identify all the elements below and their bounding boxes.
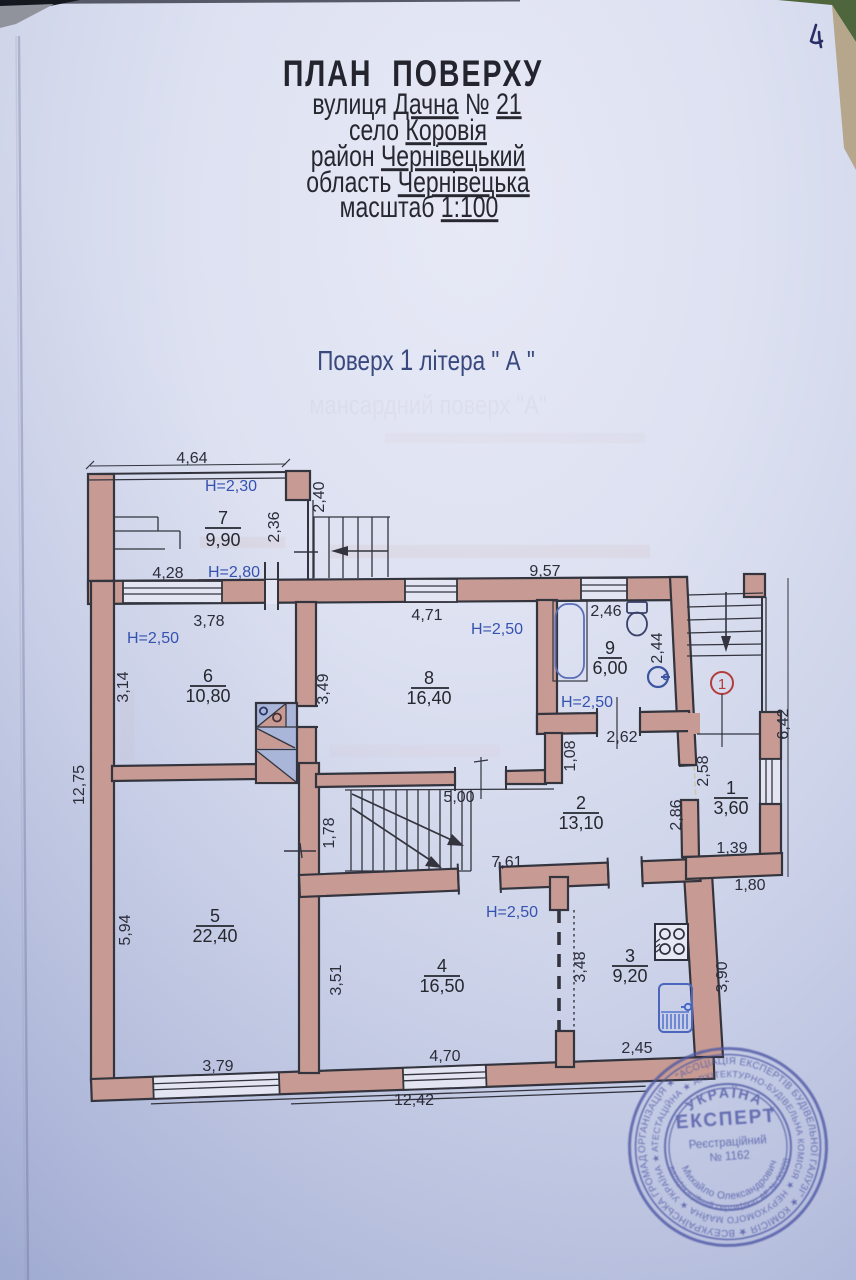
svg-text:5,00: 5,00	[443, 789, 474, 806]
svg-text:3: 3	[625, 946, 635, 966]
svg-text:мансардний поверх "А": мансардний поверх "А"	[309, 391, 546, 420]
svg-text:1: 1	[718, 676, 726, 693]
svg-text:3,78: 3,78	[193, 613, 224, 630]
svg-text:12,75: 12,75	[71, 765, 88, 805]
svg-text:7,61: 7,61	[491, 854, 522, 871]
svg-text:2,62: 2,62	[606, 729, 637, 746]
svg-text:16,50: 16,50	[419, 976, 464, 996]
svg-text:1,08: 1,08	[562, 740, 579, 771]
svg-text:6,42: 6,42	[775, 708, 792, 739]
svg-text:22,40: 22,40	[192, 926, 237, 946]
svg-text:9,20: 9,20	[612, 966, 647, 986]
svg-text:Н=2,80: Н=2,80	[208, 564, 260, 581]
svg-text:8: 8	[424, 668, 434, 688]
svg-text:2,44: 2,44	[649, 632, 666, 663]
svg-text:2,36: 2,36	[266, 511, 283, 542]
svg-text:Н=2,50: Н=2,50	[486, 904, 538, 921]
svg-text:5: 5	[210, 906, 220, 926]
svg-text:1,80: 1,80	[734, 877, 765, 894]
svg-text:2,45: 2,45	[621, 1040, 652, 1057]
svg-text:4: 4	[437, 956, 447, 976]
svg-text:Н=2,50: Н=2,50	[471, 621, 523, 638]
svg-text:9,57: 9,57	[529, 563, 560, 580]
svg-text:4,28: 4,28	[152, 565, 183, 582]
svg-text:2: 2	[576, 793, 586, 813]
svg-text:6,00: 6,00	[592, 658, 627, 678]
svg-text:5,94: 5,94	[117, 914, 134, 945]
svg-text:3,49: 3,49	[315, 673, 332, 704]
svg-text:масштаб 1:100: масштаб 1:100	[340, 190, 499, 223]
svg-text:16,40: 16,40	[406, 688, 451, 708]
svg-text:2,86: 2,86	[668, 799, 685, 830]
svg-text:Н=2,50: Н=2,50	[561, 694, 613, 711]
svg-text:3,79: 3,79	[202, 1058, 233, 1075]
svg-text:6: 6	[203, 666, 213, 686]
svg-text:3,51: 3,51	[328, 964, 345, 995]
svg-text:4,70: 4,70	[429, 1048, 460, 1065]
svg-text:Н=2,50: Н=2,50	[127, 630, 179, 647]
svg-text:7: 7	[218, 508, 228, 528]
svg-text:3,14: 3,14	[115, 671, 132, 702]
svg-text:4,71: 4,71	[411, 607, 442, 624]
svg-text:12,42: 12,42	[394, 1092, 434, 1109]
svg-text:1,39: 1,39	[716, 840, 747, 857]
svg-text:1: 1	[726, 778, 736, 798]
svg-text:2,58: 2,58	[695, 755, 712, 786]
svg-text:9,90: 9,90	[205, 530, 240, 550]
svg-text:3,48: 3,48	[572, 951, 589, 982]
svg-text:Н=2,30: Н=2,30	[205, 478, 257, 495]
svg-text:3,60: 3,60	[713, 798, 748, 818]
svg-text:2,40: 2,40	[311, 481, 328, 512]
svg-text:3,90: 3,90	[714, 961, 731, 992]
svg-text:13,10: 13,10	[558, 813, 603, 833]
svg-text:1,78: 1,78	[321, 817, 338, 848]
svg-text:4,64: 4,64	[176, 450, 207, 467]
svg-text:Поверх 1 літера " А ": Поверх 1 літера " А "	[317, 342, 535, 376]
svg-text:2,46: 2,46	[590, 603, 621, 620]
svg-text:10,80: 10,80	[185, 686, 230, 706]
svg-text:9: 9	[605, 638, 615, 658]
